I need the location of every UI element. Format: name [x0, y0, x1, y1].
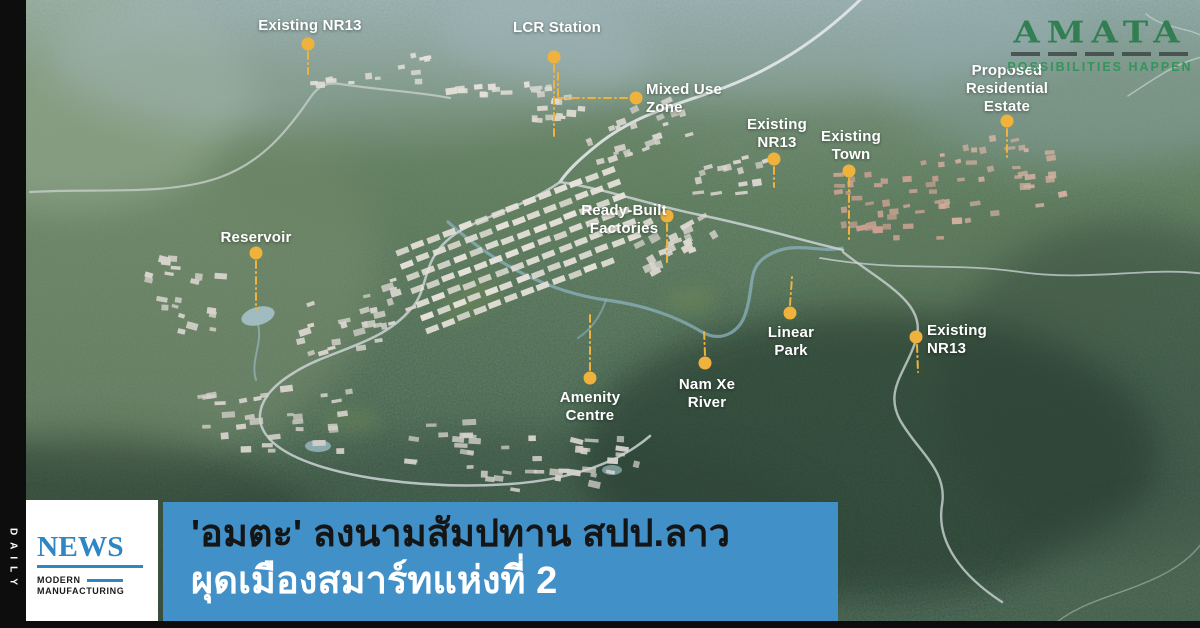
bottom-frame-strip — [0, 621, 1200, 628]
amata-logo: AMATA POSSIBILITIES HAPPEN — [1005, 16, 1195, 74]
map-label-existing-town: ExistingTown — [821, 128, 881, 164]
map-label-reservoir: Reservoir — [220, 229, 291, 247]
daily-vertical-text: DAILY — [8, 528, 19, 592]
amata-tagline: POSSIBILITIES HAPPEN — [1005, 60, 1195, 74]
headline-line1: 'อมตะ' ลงนามสัมปทาน สปป.ลาว — [191, 511, 838, 558]
publisher-name: MODERN MANUFACTURING — [37, 575, 158, 597]
news-underline — [37, 565, 143, 568]
map-label-linear-park: LinearPark — [768, 324, 814, 360]
publisher-name-line1: MODERN — [37, 575, 81, 586]
masthead-dash — [87, 579, 123, 582]
publisher-masthead: NEWS MODERN MANUFACTURING — [26, 500, 158, 621]
headline-line2: ผุดเมืองสมาร์ทแห่งที่ 2 — [191, 558, 838, 605]
publisher-name-line2: MANUFACTURING — [37, 586, 124, 596]
map-label-amenity-centre: AmenityCentre — [560, 389, 621, 425]
map-label-nam-xe-river: Nam XeRiver — [679, 376, 735, 412]
amata-logo-rule — [1011, 52, 1189, 56]
map-label-existing-nr13-top: Existing NR13 — [258, 17, 361, 35]
news-poster: Existing NR13LCR StationMixed UseZoneExi… — [0, 0, 1200, 628]
map-label-lcr-station: LCR Station — [513, 19, 601, 37]
map-label-existing-nr13-mid: ExistingNR13 — [747, 116, 807, 152]
daily-side-strip: DAILY — [0, 0, 26, 628]
amata-wordmark: AMATA — [1005, 18, 1195, 48]
map-label-ready-built-factories: Ready-BuiltFactories — [581, 202, 667, 238]
map-label-existing-nr13-right: ExistingNR13 — [927, 322, 987, 358]
map-label-mixed-use-zone: Mixed UseZone — [646, 81, 722, 117]
news-wordmark: NEWS — [37, 536, 124, 560]
headline-banner: 'อมตะ' ลงนามสัมปทาน สปป.ลาว ผุดเมืองสมาร… — [163, 502, 838, 621]
